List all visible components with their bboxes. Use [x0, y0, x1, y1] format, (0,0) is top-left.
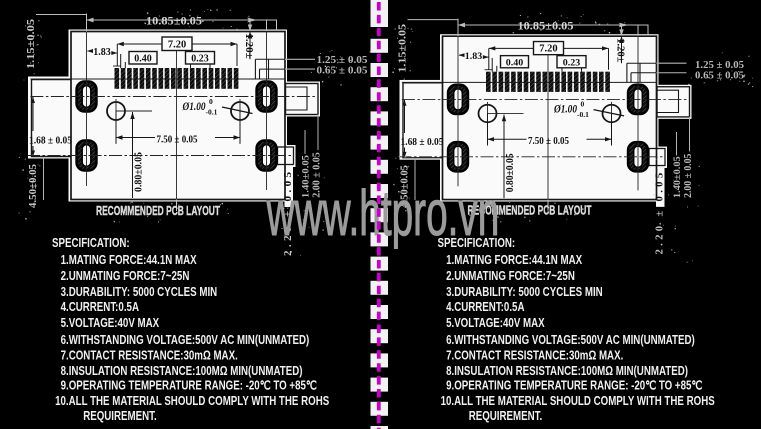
- svg-text:www.htpro.vn: www.htpro.vn: [266, 178, 499, 249]
- svg-text:0.65 ± 0.05: 0.65 ± 0.05: [695, 71, 744, 82]
- svg-text:0.65 ± 0.05: 0.65 ± 0.05: [317, 66, 368, 77]
- svg-text:1.25 ± 0.05: 1.25 ± 0.05: [695, 60, 744, 71]
- svg-text:1.25 ± 0.05: 1.25 ± 0.05: [317, 55, 368, 66]
